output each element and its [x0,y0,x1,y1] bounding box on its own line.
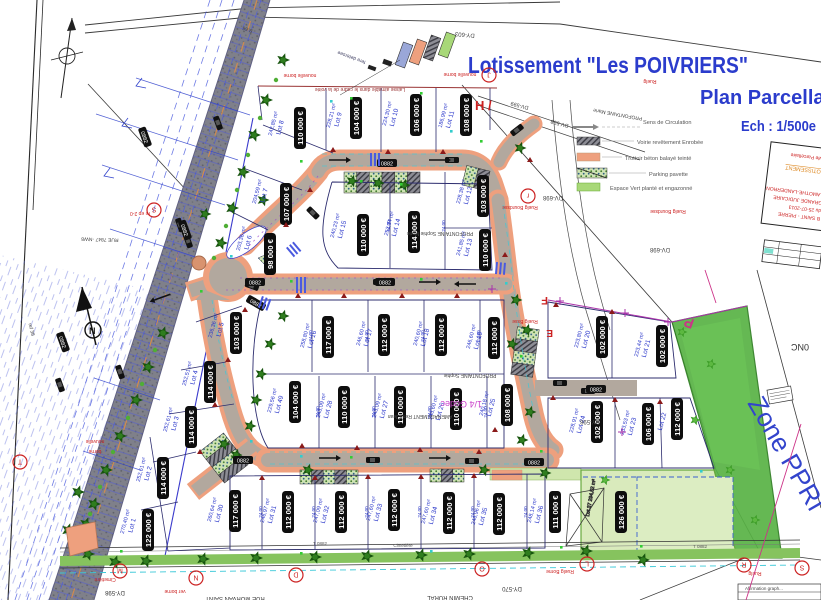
svg-text:126 000 €: 126 000 € [617,494,626,529]
svg-text:Voirie revêtement Enrobée: Voirie revêtement Enrobée [637,140,703,146]
svg-text:DV-698: DV-698 [542,194,563,200]
svg-text:D: D [293,571,298,578]
svg-text:Cimetière: Cimetière [393,543,413,548]
svg-text:DY-598: DY-598 [579,418,599,424]
svg-text:borne: borne [88,448,101,454]
svg-text:112 000 €: 112 000 € [445,495,454,529]
svg-text:Ruelg Bsse: Ruelg Bsse [512,318,538,324]
svg-text:104 000 €: 104 000 € [291,384,300,419]
svg-text:M: M [117,567,123,574]
svg-text:24.00: 24.00 [470,506,475,518]
svg-text:24.00: 24.00 [311,506,316,518]
svg-text:PROFONTAINE Sophie: PROFONTAINE Sophie [443,372,496,378]
svg-text:DY-570: DY-570 [501,585,521,591]
svg-text:112 000 €: 112 000 € [284,494,293,528]
svg-text:112 000 €: 112 000 € [495,496,504,530]
svg-text:0882: 0882 [237,458,249,464]
svg-text:nouvelle borne: nouvelle borne [283,72,316,78]
svg-text:DV-698: DV-698 [649,246,670,252]
svg-text:0882: 0882 [379,280,391,286]
svg-text:104 000 €: 104 000 € [352,100,361,135]
svg-text:1/4 Godec: 1/4 Godec [440,399,482,409]
svg-text:O: O [479,565,485,572]
svg-text:24.00: 24.00 [427,406,432,418]
svg-text:24.00: 24.00 [315,406,320,418]
svg-text:0NC: 0NC [791,342,810,352]
svg-text:112 000 €: 112 000 € [380,317,389,351]
svg-text:Lotissement "Les POIVRIERS": Lotissement "Les POIVRIERS" [468,52,748,78]
svg-text:112 000 €: 112 000 € [673,401,682,435]
svg-text:Ruelg: Ruelg [643,78,656,84]
svg-text:106 000 €: 106 000 € [644,406,653,441]
svg-text:102 000 €: 102 000 € [598,319,607,354]
svg-text:Ruelg Borne: Ruelg Borne [546,568,574,574]
svg-text:H /: H / [475,98,492,113]
svg-text:Affirmation graph...: Affirmation graph... [745,586,783,591]
svg-text:Ruelg Bourdsse: Ruelg Bourdsse [502,204,538,210]
svg-text:122 000 €: 122 000 € [144,512,153,547]
svg-text:CHEMIN RURAL: CHEMIN RURAL [427,594,473,600]
svg-text:117 000 €: 117 000 € [231,493,240,527]
svg-text:0882: 0882 [249,280,261,286]
svg-text:Trottoir béton balayé teinté: Trottoir béton balayé teinté [625,156,691,162]
svg-text:Parking pavette: Parking pavette [649,172,688,178]
svg-text:106 000 €: 106 000 € [412,97,421,132]
svg-text:110 000 €: 110 000 € [359,217,368,251]
svg-text:24.00: 24.00 [420,330,425,342]
svg-text:117 000 €: 117 000 € [324,319,333,353]
svg-text:24.00: 24.00 [308,330,313,342]
svg-text:24.00: 24.00 [476,330,481,342]
svg-text:F: F [541,294,548,306]
svg-text:107 000 €: 107 000 € [282,186,291,221]
svg-text:T 0882: T 0882 [693,544,707,549]
svg-text:24.00: 24.00 [483,406,488,418]
svg-text:J: J [487,71,491,78]
svg-text:L: L [585,560,589,567]
svg-text:102 000 €: 102 000 € [658,328,667,363]
svg-text:98 000 €: 98 000 € [266,238,275,269]
svg-text:0882: 0882 [381,161,393,167]
svg-text:108 000 €: 108 000 € [462,97,471,132]
svg-text:24.00: 24.00 [258,506,263,518]
svg-text:24.00: 24.00 [371,406,376,418]
svg-text:24.00: 24.00 [441,220,446,232]
svg-text:PROFONTAINE Sophie Marie: PROFONTAINE Sophie Marie [406,230,473,236]
svg-text:24.00: 24.00 [523,506,528,518]
svg-text:0882: 0882 [528,460,540,466]
svg-text:Ech : 1/500e: Ech : 1/500e [741,119,816,135]
svg-text:Sens de Circulation: Sens de Circulation [643,120,692,126]
svg-text:AMENAGEMENT René Jean: AMENAGEMENT René Jean [387,413,452,419]
svg-text:103 000 €: 103 000 € [232,315,241,350]
svg-text:110 000 €: 110 000 € [340,389,349,423]
svg-text:110 000 €: 110 000 € [481,232,490,266]
svg-text:24.00: 24.00 [364,506,369,518]
svg-text:S: S [151,206,156,213]
svg-text:N: N [193,574,198,581]
svg-text:114 000 €: 114 000 € [187,409,196,443]
svg-text:108 000 €: 108 000 € [503,387,512,422]
svg-text:Plan Parcellaire: Plan Parcellaire [700,87,821,109]
svg-text:RUE MORVAN SAINT: RUE MORVAN SAINT [205,595,265,600]
svg-text:DY-598: DY-598 [104,589,124,595]
svg-text:Espace Vert planté et engazonn: Espace Vert planté et engazonné [610,186,692,192]
svg-text:T 0882: T 0882 [313,541,327,546]
svg-text:Ruelg Bourdsse: Ruelg Bourdsse [650,208,686,214]
svg-text:24.00: 24.00 [417,506,422,518]
svg-text:112 000 €: 112 000 € [390,492,399,526]
svg-text:nouvelle borne: nouvelle borne [443,71,476,77]
svg-text:ver borne: ver borne [164,588,185,594]
svg-text:Laisse aimable dans le cadre d: Laisse aimable dans le cadre de la voiri… [315,86,406,92]
svg-text:111 000 €: 111 000 € [551,495,560,529]
svg-text:114 000 €: 114 000 € [206,364,215,398]
svg-text:S: S [799,564,804,571]
svg-text:112 000 €: 112 000 € [490,320,499,354]
svg-text:112 000 €: 112 000 € [437,317,446,351]
svg-text:24.00: 24.00 [386,220,391,232]
svg-text:110 000 €: 110 000 € [296,110,305,144]
svg-text:N: N [89,326,96,336]
svg-text:24.00: 24.00 [364,330,369,342]
svg-text:Cimetière: Cimetière [94,576,116,582]
svg-text:112 000 €: 112 000 € [337,494,346,528]
svg-text:114 000 €: 114 000 € [159,460,168,494]
svg-text:103 000 €: 103 000 € [479,178,488,213]
svg-text:0882: 0882 [590,387,602,393]
svg-text:re ep 2-0: re ep 2-0 [130,210,150,216]
svg-text:R: R [741,561,746,568]
svg-text:nouvelle: nouvelle [85,438,104,444]
svg-text:E: E [546,327,553,338]
svg-text:T: T [17,458,22,465]
